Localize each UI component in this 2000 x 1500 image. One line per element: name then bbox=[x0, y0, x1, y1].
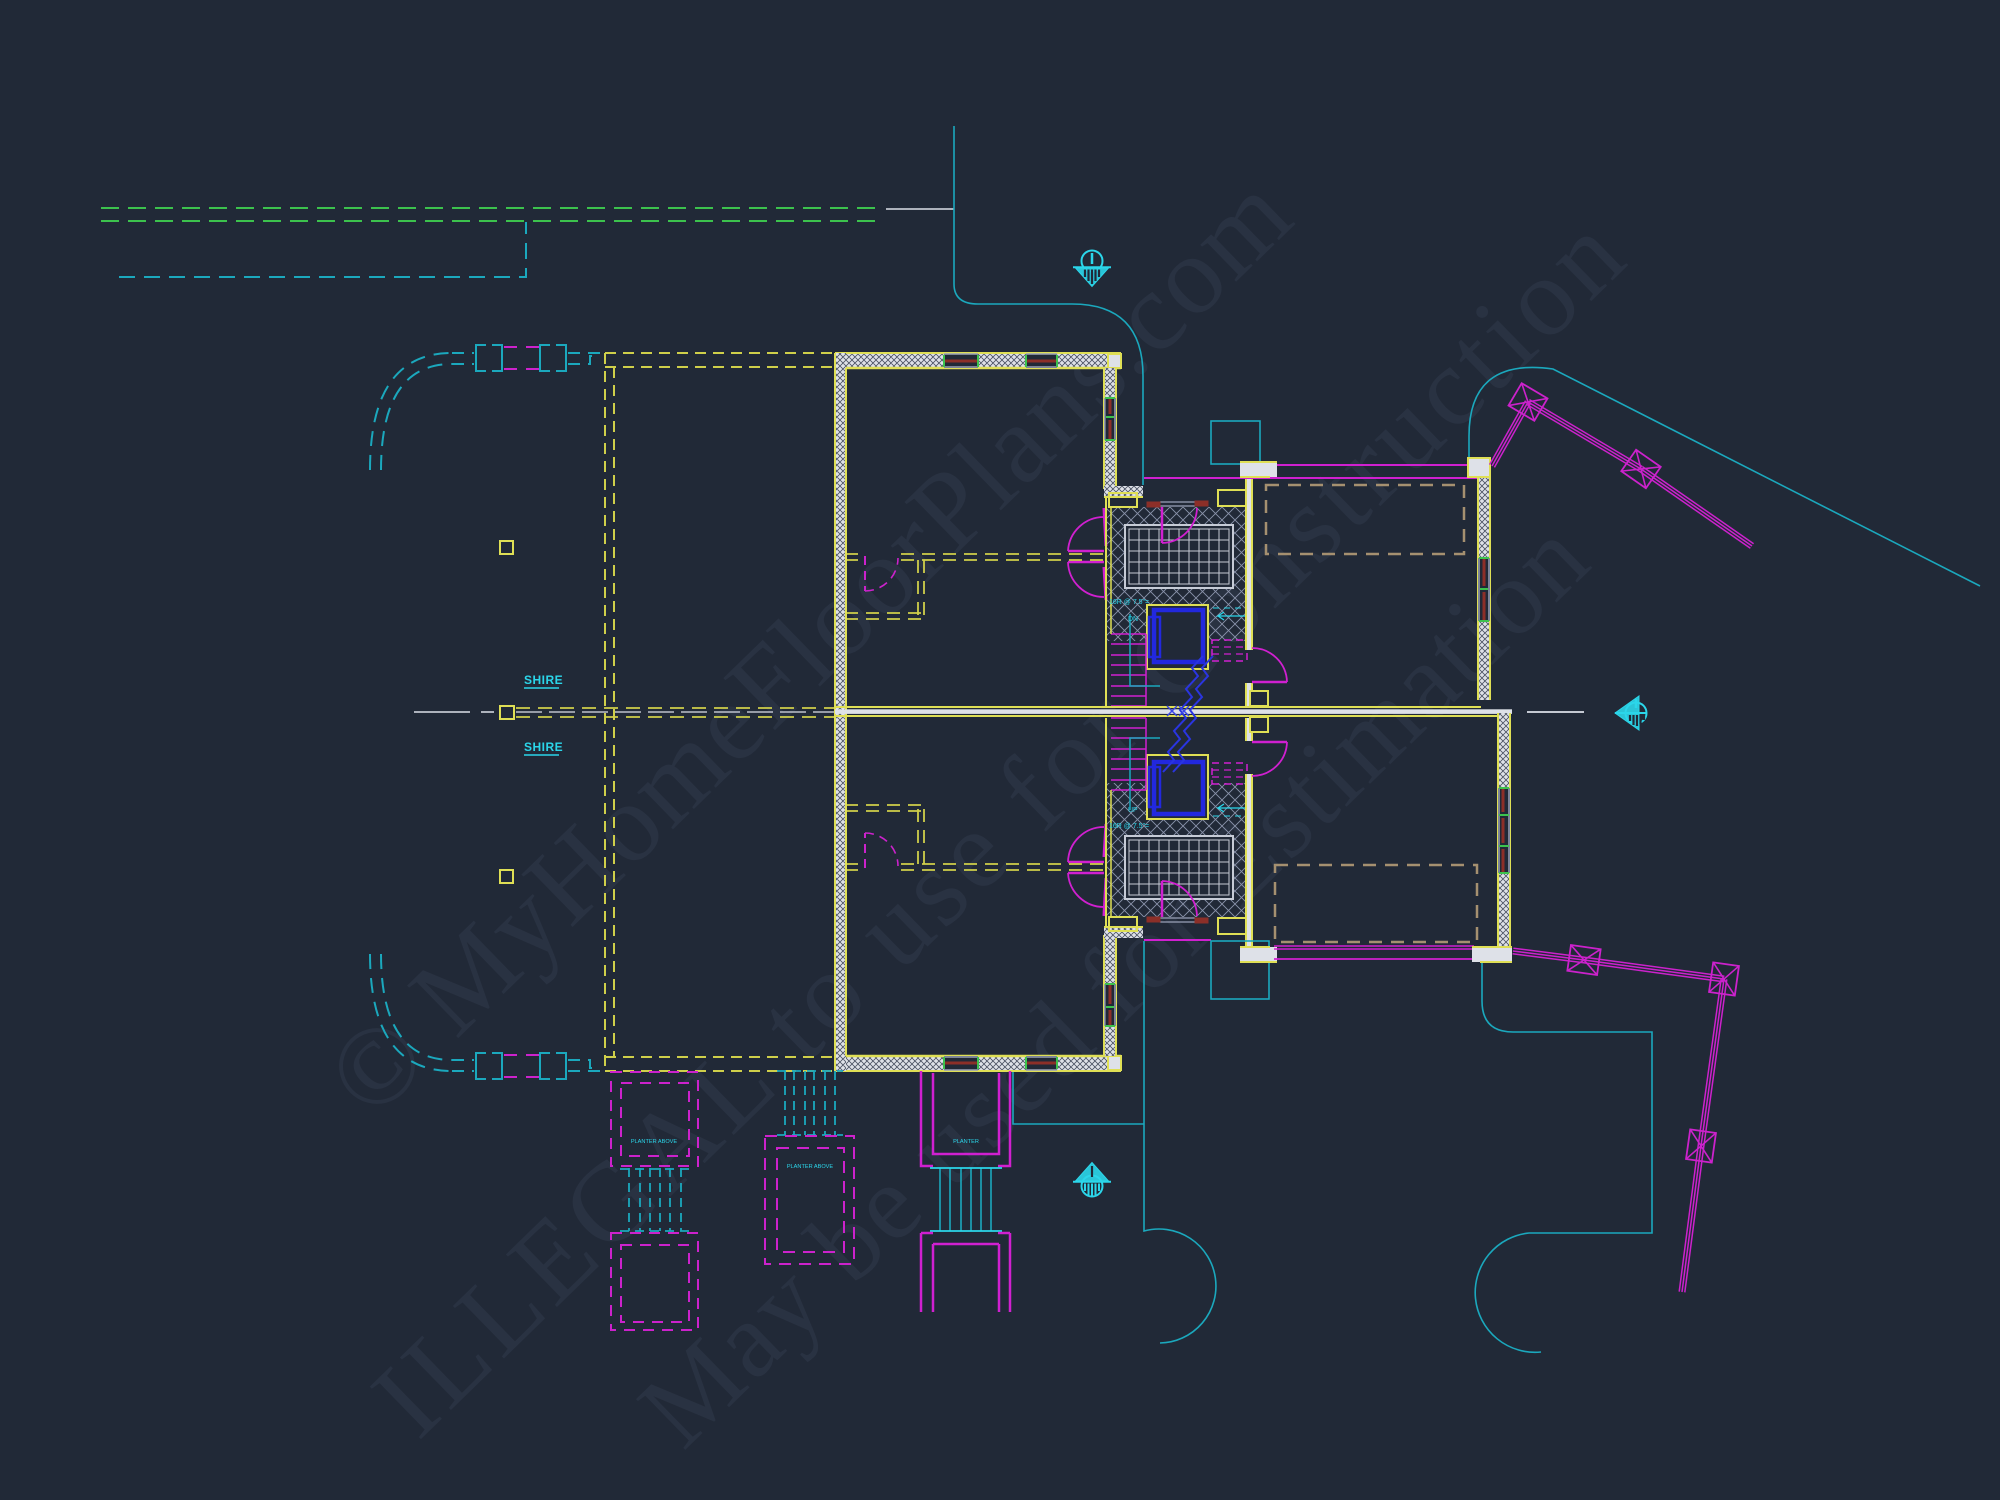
svg-text:16R @ 7.5"=: 16R @ 7.5"= bbox=[1109, 823, 1149, 830]
svg-text:PLANTER: PLANTER bbox=[953, 1139, 979, 1145]
svg-text:SHIRE: SHIRE bbox=[524, 740, 563, 754]
svg-text:PLANTER ABOVE: PLANTER ABOVE bbox=[631, 1139, 678, 1145]
svg-text:SHIRE: SHIRE bbox=[524, 673, 563, 687]
svg-text:PLANTER ABOVE: PLANTER ABOVE bbox=[787, 1164, 834, 1170]
svg-text:DN: DN bbox=[1128, 616, 1138, 623]
svg-text:16R @ 7.5"=: 16R @ 7.5"= bbox=[1109, 599, 1149, 606]
svg-text:UP: UP bbox=[1128, 807, 1138, 814]
